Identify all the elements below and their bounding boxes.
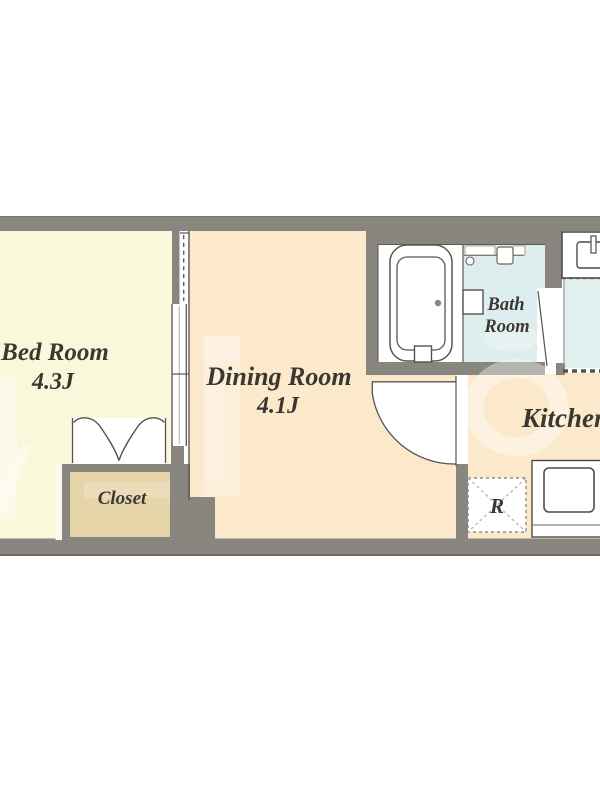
svg-text:Kitchen: Kitchen <box>521 403 600 433</box>
svg-text:Closet: Closet <box>98 488 147 509</box>
svg-text:4.1J: 4.1J <box>256 393 300 419</box>
svg-text:4.3J: 4.3J <box>31 369 75 395</box>
svg-text:Bath: Bath <box>486 295 524 315</box>
svg-text:Bed Room: Bed Room <box>0 339 109 366</box>
svg-text:Dining Room: Dining Room <box>205 362 351 391</box>
svg-text:R: R <box>489 494 504 518</box>
svg-text:Room: Room <box>483 317 529 337</box>
